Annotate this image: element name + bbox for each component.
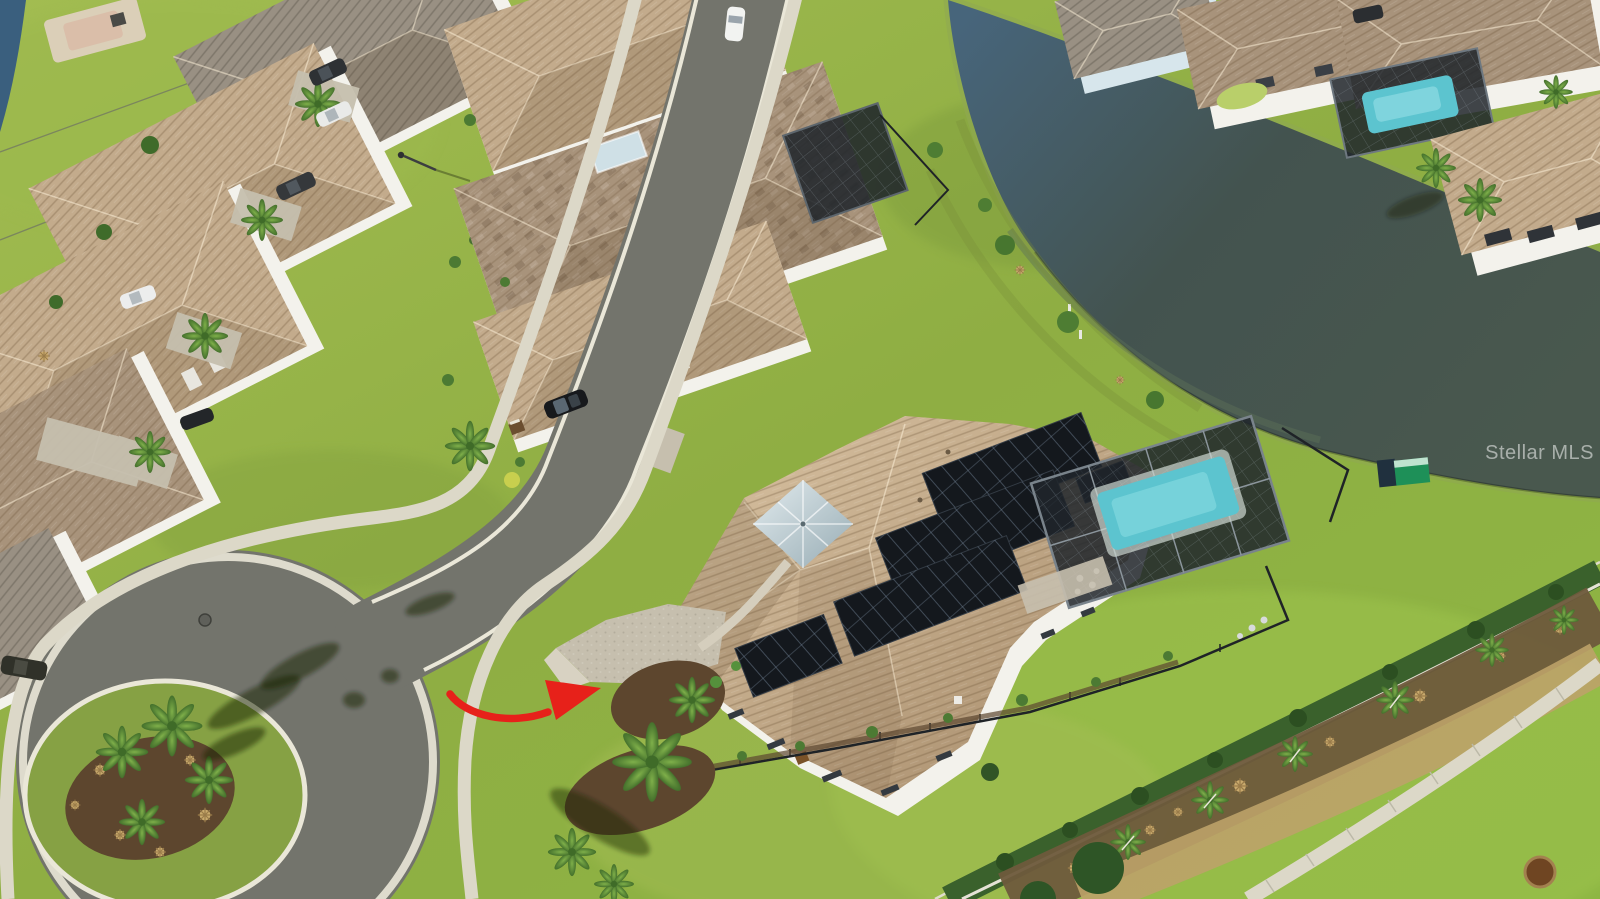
manhole (199, 614, 211, 626)
aerial-photo: Stellar MLS (0, 0, 1600, 899)
ac-unit (954, 696, 962, 704)
utility-dumpster (1377, 455, 1431, 487)
aerial-photo-canvas: Stellar MLS (0, 0, 1600, 899)
watermark: Stellar MLS (1485, 442, 1594, 464)
island (25, 681, 305, 899)
manhole-corner (1525, 857, 1555, 887)
car (724, 6, 745, 42)
tree (1072, 842, 1124, 894)
